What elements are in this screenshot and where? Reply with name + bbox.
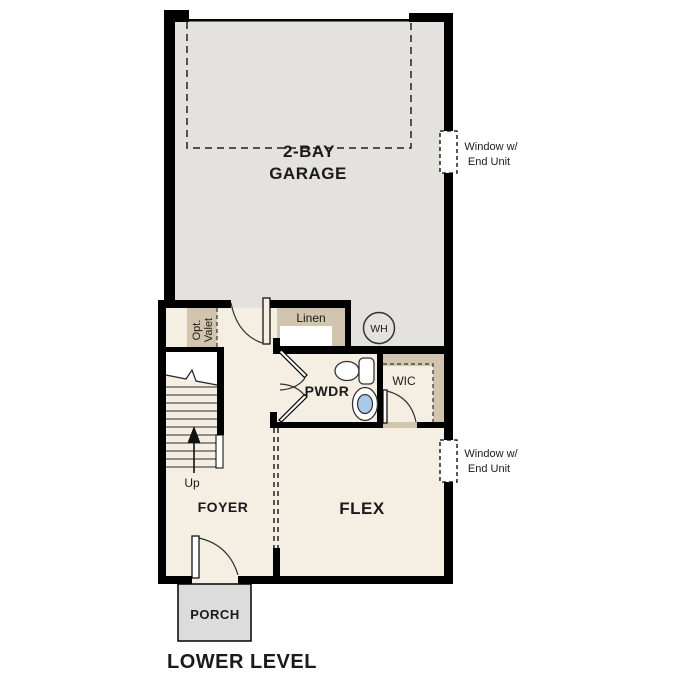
pwdr-label: PWDR — [305, 383, 350, 399]
right-wall-b — [444, 172, 453, 441]
porch-label: PORCH — [190, 607, 239, 622]
sink-icon — [353, 388, 378, 421]
floor-title: LOWER LEVEL — [167, 651, 317, 673]
garage-label-line1: 2-BAY — [283, 142, 335, 161]
bottom-wall-right — [238, 576, 453, 584]
bottom-wall-left — [158, 576, 192, 584]
stair-side-wall — [217, 347, 224, 435]
flex-label: FLEX — [339, 499, 385, 518]
window-lower-label-line1: Window w/ — [464, 448, 518, 460]
linen-wh-divider — [345, 300, 351, 346]
window-lower-icon — [440, 440, 457, 482]
valet-label-line1: Opt. — [191, 320, 203, 341]
garage-label-line2: GARAGE — [269, 164, 347, 183]
right-wall-c — [444, 481, 453, 584]
floor-plan-page: 2-BAY GARAGE Linen Opt. Valet WH PWDR WI… — [0, 0, 687, 687]
right-wall-a — [444, 13, 453, 132]
water-heater-label: WH — [370, 323, 388, 335]
window-lower-label-line2: End Unit — [468, 463, 510, 475]
window-upper-label-line2: End Unit — [468, 156, 510, 168]
garage-door-header — [174, 19, 412, 22]
pwdr-south-wall — [270, 422, 383, 428]
left-wall-upper — [164, 10, 175, 302]
wic-label: WIC — [392, 374, 416, 388]
valet-label-line2: Valet — [203, 318, 215, 342]
wic-south-wall — [417, 422, 453, 428]
floor-plan-svg: 2-BAY GARAGE Linen Opt. Valet WH PWDR WI… — [0, 0, 687, 687]
stairs-up-label: Up — [184, 476, 200, 490]
foyer-flex-stub — [273, 548, 280, 576]
garage-south-wall-right — [270, 300, 351, 308]
pwdr-wic-divider — [377, 354, 383, 428]
left-wall-lower — [158, 300, 166, 584]
window-upper-icon — [440, 131, 457, 173]
stair-railing — [216, 435, 223, 468]
garage-south-wall-left — [166, 300, 231, 308]
linen-label: Linen — [296, 311, 325, 325]
foyer-label: FOYER — [198, 499, 249, 515]
floor-fills — [166, 20, 444, 576]
window-upper-label-line1: Window w/ — [464, 141, 518, 153]
pwdr-wic-north-wall — [277, 346, 453, 354]
